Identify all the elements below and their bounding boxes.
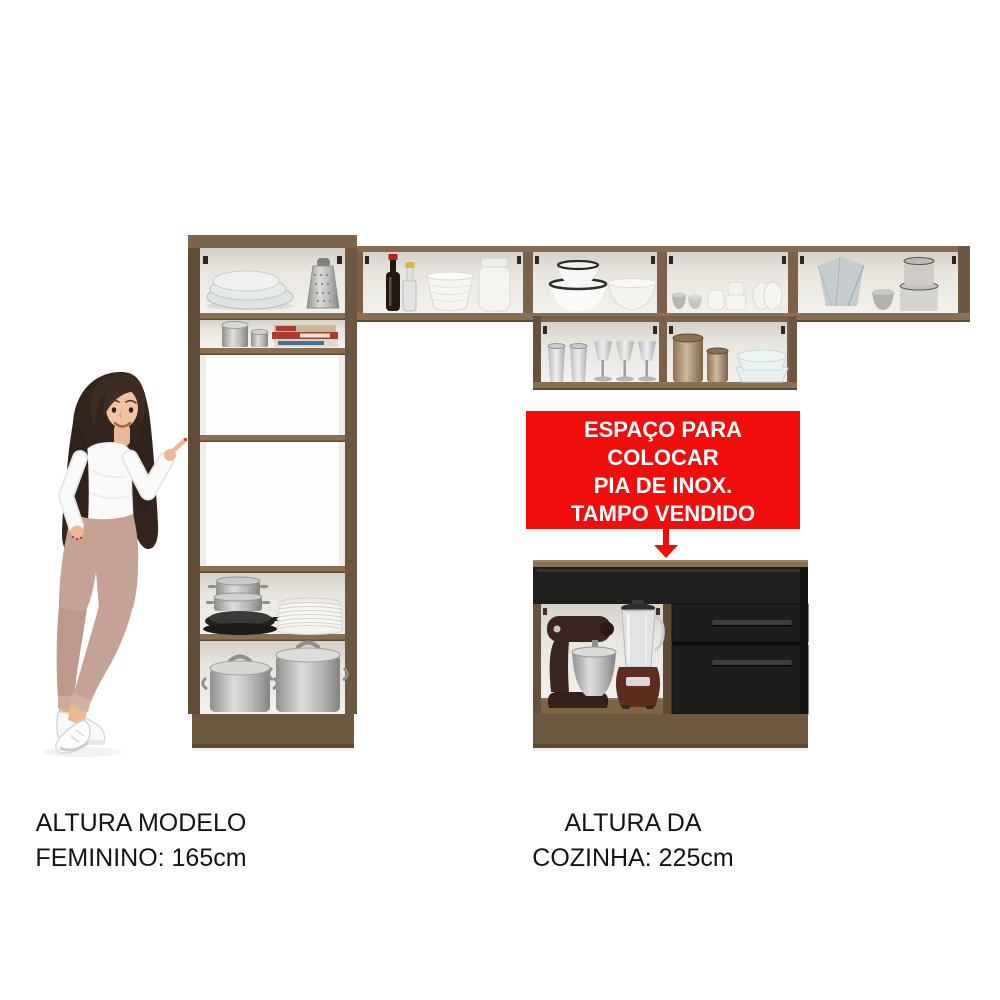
plate-stack — [277, 598, 343, 635]
drawer-handle — [712, 620, 792, 625]
bowl-stack — [427, 272, 473, 311]
stand-mixer — [547, 616, 616, 708]
caption-line: ALTURA DA — [518, 806, 748, 841]
drawers — [672, 604, 808, 714]
canister-stack — [900, 258, 938, 312]
upper-cabinets-row1 — [357, 246, 970, 322]
down-arrow-icon — [650, 529, 682, 559]
model-height-caption: ALTURA MODELO FEMININO: 165cm — [26, 806, 256, 876]
caption-line: COZINHA: 225cm — [518, 841, 748, 876]
tall-cabinet — [188, 235, 357, 751]
kitchen-height-caption: ALTURA DA COZINHA: 225cm — [518, 806, 748, 876]
caption-line: ALTURA MODELO — [26, 806, 256, 841]
white-jar — [479, 258, 510, 311]
drawer-handle — [712, 660, 792, 665]
sink-base-cabinet — [533, 560, 808, 751]
sink-notice-line: PIA DE INOX. — [526, 472, 800, 500]
model-photo — [42, 372, 187, 757]
upper-cabinets-row2 — [533, 316, 797, 390]
sink-notice-banner: ESPAÇO PARA COLOCAR PIA DE INOX. TAMPO V… — [526, 411, 800, 529]
sink-notice-line: TAMPO VENDIDO — [526, 500, 800, 528]
books — [272, 325, 338, 347]
blue-bowl-stack — [736, 350, 788, 382]
caption-line: FEMININO: 165cm — [26, 841, 256, 876]
sink-notice-line: ESPAÇO PARA COLOCAR — [526, 416, 800, 472]
product-image: ESPAÇO PARA COLOCAR PIA DE INOX. TAMPO V… — [0, 0, 1000, 1000]
